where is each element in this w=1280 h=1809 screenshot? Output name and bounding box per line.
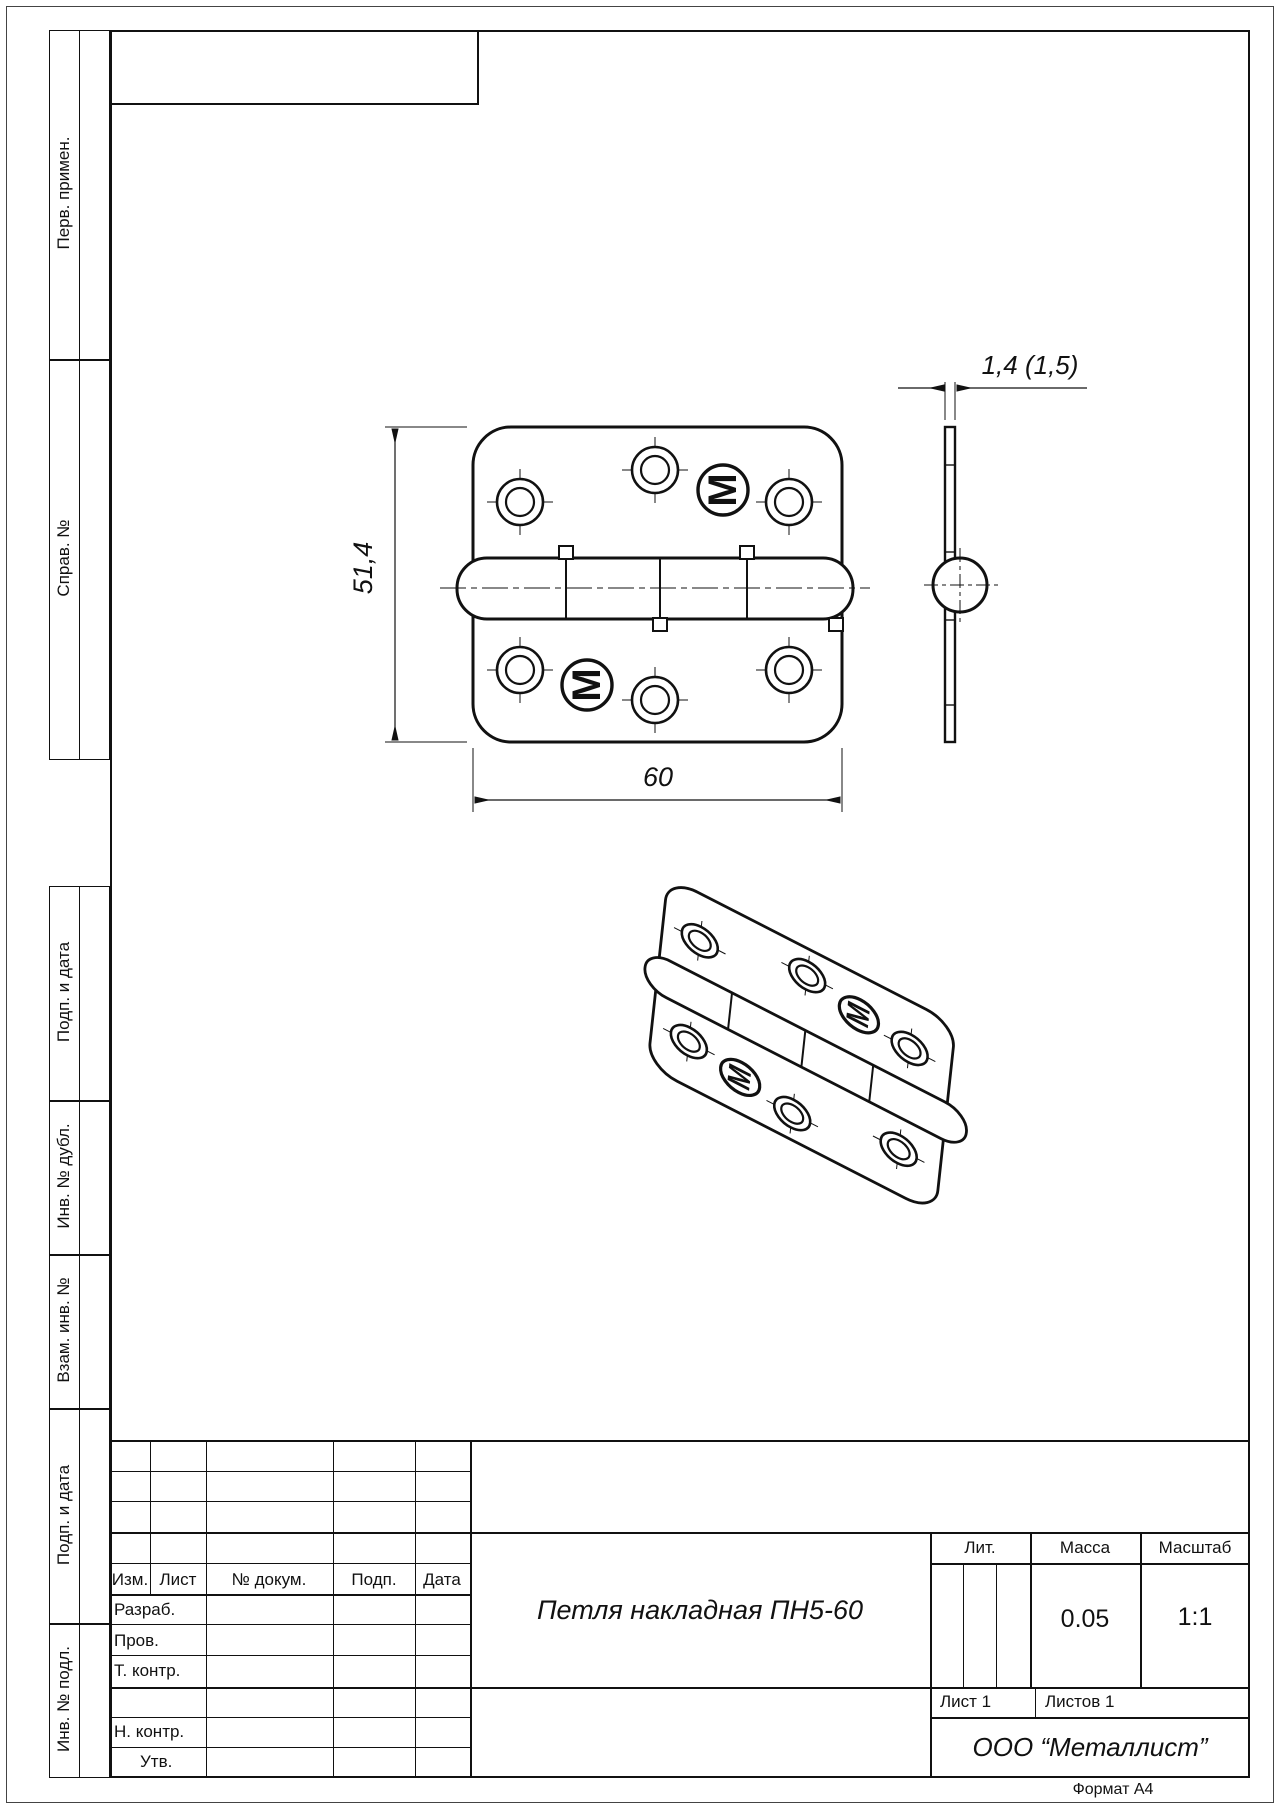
side-view xyxy=(924,427,998,742)
logo-letter: M xyxy=(565,668,609,701)
drawing-canvas: M M 51,4 60 xyxy=(0,0,1280,1809)
logo-hole: M xyxy=(698,465,748,515)
dimension-width: 60 xyxy=(473,748,842,812)
isometric-view: M M xyxy=(635,871,977,1225)
screw-hole xyxy=(622,437,688,503)
screw-hole xyxy=(756,469,822,535)
drawing-sheet: Перв. примен. Справ. № Подп. и дата Инв.… xyxy=(0,0,1280,1809)
dim-width-text: 60 xyxy=(643,762,673,792)
screw-hole xyxy=(487,469,553,535)
logo-letter: M xyxy=(701,473,745,506)
logo-hole: M xyxy=(562,660,612,710)
front-view: M M xyxy=(440,427,870,742)
dim-height-text: 51,4 xyxy=(348,542,378,595)
screw-hole xyxy=(487,637,553,703)
dimension-thickness: 1,4 (1,5) xyxy=(898,350,1087,420)
dimension-height: 51,4 xyxy=(348,427,467,742)
dim-thickness-text: 1,4 (1,5) xyxy=(982,350,1079,380)
screw-hole xyxy=(622,667,688,733)
screw-hole xyxy=(756,637,822,703)
